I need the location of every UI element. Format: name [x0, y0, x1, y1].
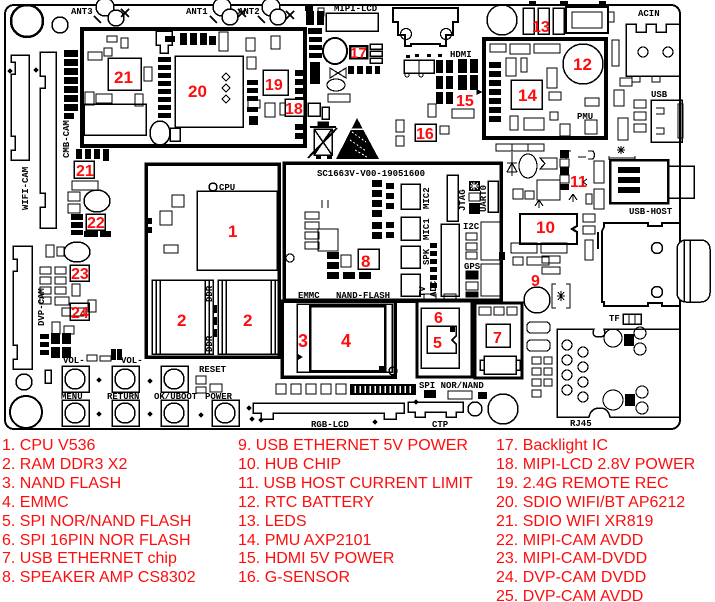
svg-text:VOL-: VOL- [121, 356, 143, 366]
svg-text:3: 3 [298, 331, 308, 351]
svg-text:4: 4 [341, 331, 351, 351]
svg-text:SC1663V-V00-19051600: SC1663V-V00-19051600 [317, 169, 425, 179]
svg-text:15: 15 [456, 93, 474, 110]
svg-text:2: 2 [243, 311, 252, 330]
svg-text:1: 1 [228, 222, 237, 241]
svg-text:2: 2 [177, 311, 186, 330]
svg-text:21: 21 [76, 163, 94, 180]
svg-text:17: 17 [350, 45, 367, 62]
svg-text:RESET: RESET [199, 365, 227, 375]
svg-text:ANT2: ANT2 [238, 7, 260, 17]
svg-text:ACIN: ACIN [638, 9, 660, 19]
svg-text:20: 20 [188, 82, 207, 101]
svg-text:TF: TF [609, 314, 620, 324]
svg-text:USB: USB [651, 90, 668, 100]
svg-text:19: 19 [265, 77, 283, 94]
svg-text:6: 6 [434, 310, 443, 327]
svg-text:18: 18 [285, 101, 303, 118]
svg-text:SPI NOR/NAND: SPI NOR/NAND [419, 381, 484, 391]
svg-text:24: 24 [71, 305, 89, 322]
svg-text:MIC1: MIC1 [422, 218, 432, 240]
svg-text:WIFI-CAM: WIFI-CAM [21, 167, 31, 210]
svg-text:21: 21 [114, 68, 133, 87]
svg-text:RJ45: RJ45 [570, 419, 592, 429]
svg-text:10: 10 [536, 218, 555, 237]
svg-text:CTP: CTP [432, 420, 449, 430]
svg-text:RGB-LCD: RGB-LCD [311, 420, 349, 430]
svg-text:CMB-CAM: CMB-CAM [62, 120, 72, 158]
svg-text:TV: TV [418, 286, 428, 297]
svg-text:USB-HOST: USB-HOST [629, 207, 673, 217]
svg-text:16: 16 [416, 126, 434, 143]
svg-text:ANT1: ANT1 [186, 7, 208, 17]
svg-text:ANT3: ANT3 [71, 7, 93, 17]
svg-text:7: 7 [493, 330, 502, 347]
svg-text:23: 23 [71, 266, 89, 283]
svg-text:MIC2: MIC2 [422, 187, 432, 209]
svg-text:13: 13 [532, 19, 550, 36]
svg-text:DDR: DDR [205, 335, 215, 352]
svg-text:8: 8 [361, 252, 370, 271]
svg-text:14: 14 [518, 86, 537, 105]
svg-text:JTAG: JTAG [458, 189, 468, 211]
svg-text:12: 12 [573, 55, 592, 74]
svg-text:VOL-: VOL- [63, 356, 85, 366]
svg-text:5: 5 [433, 335, 442, 352]
svg-text:DDR: DDR [205, 285, 215, 302]
svg-text:HDMI: HDMI [450, 50, 472, 60]
svg-text:22: 22 [87, 215, 105, 232]
svg-text:I2C: I2C [463, 222, 480, 232]
